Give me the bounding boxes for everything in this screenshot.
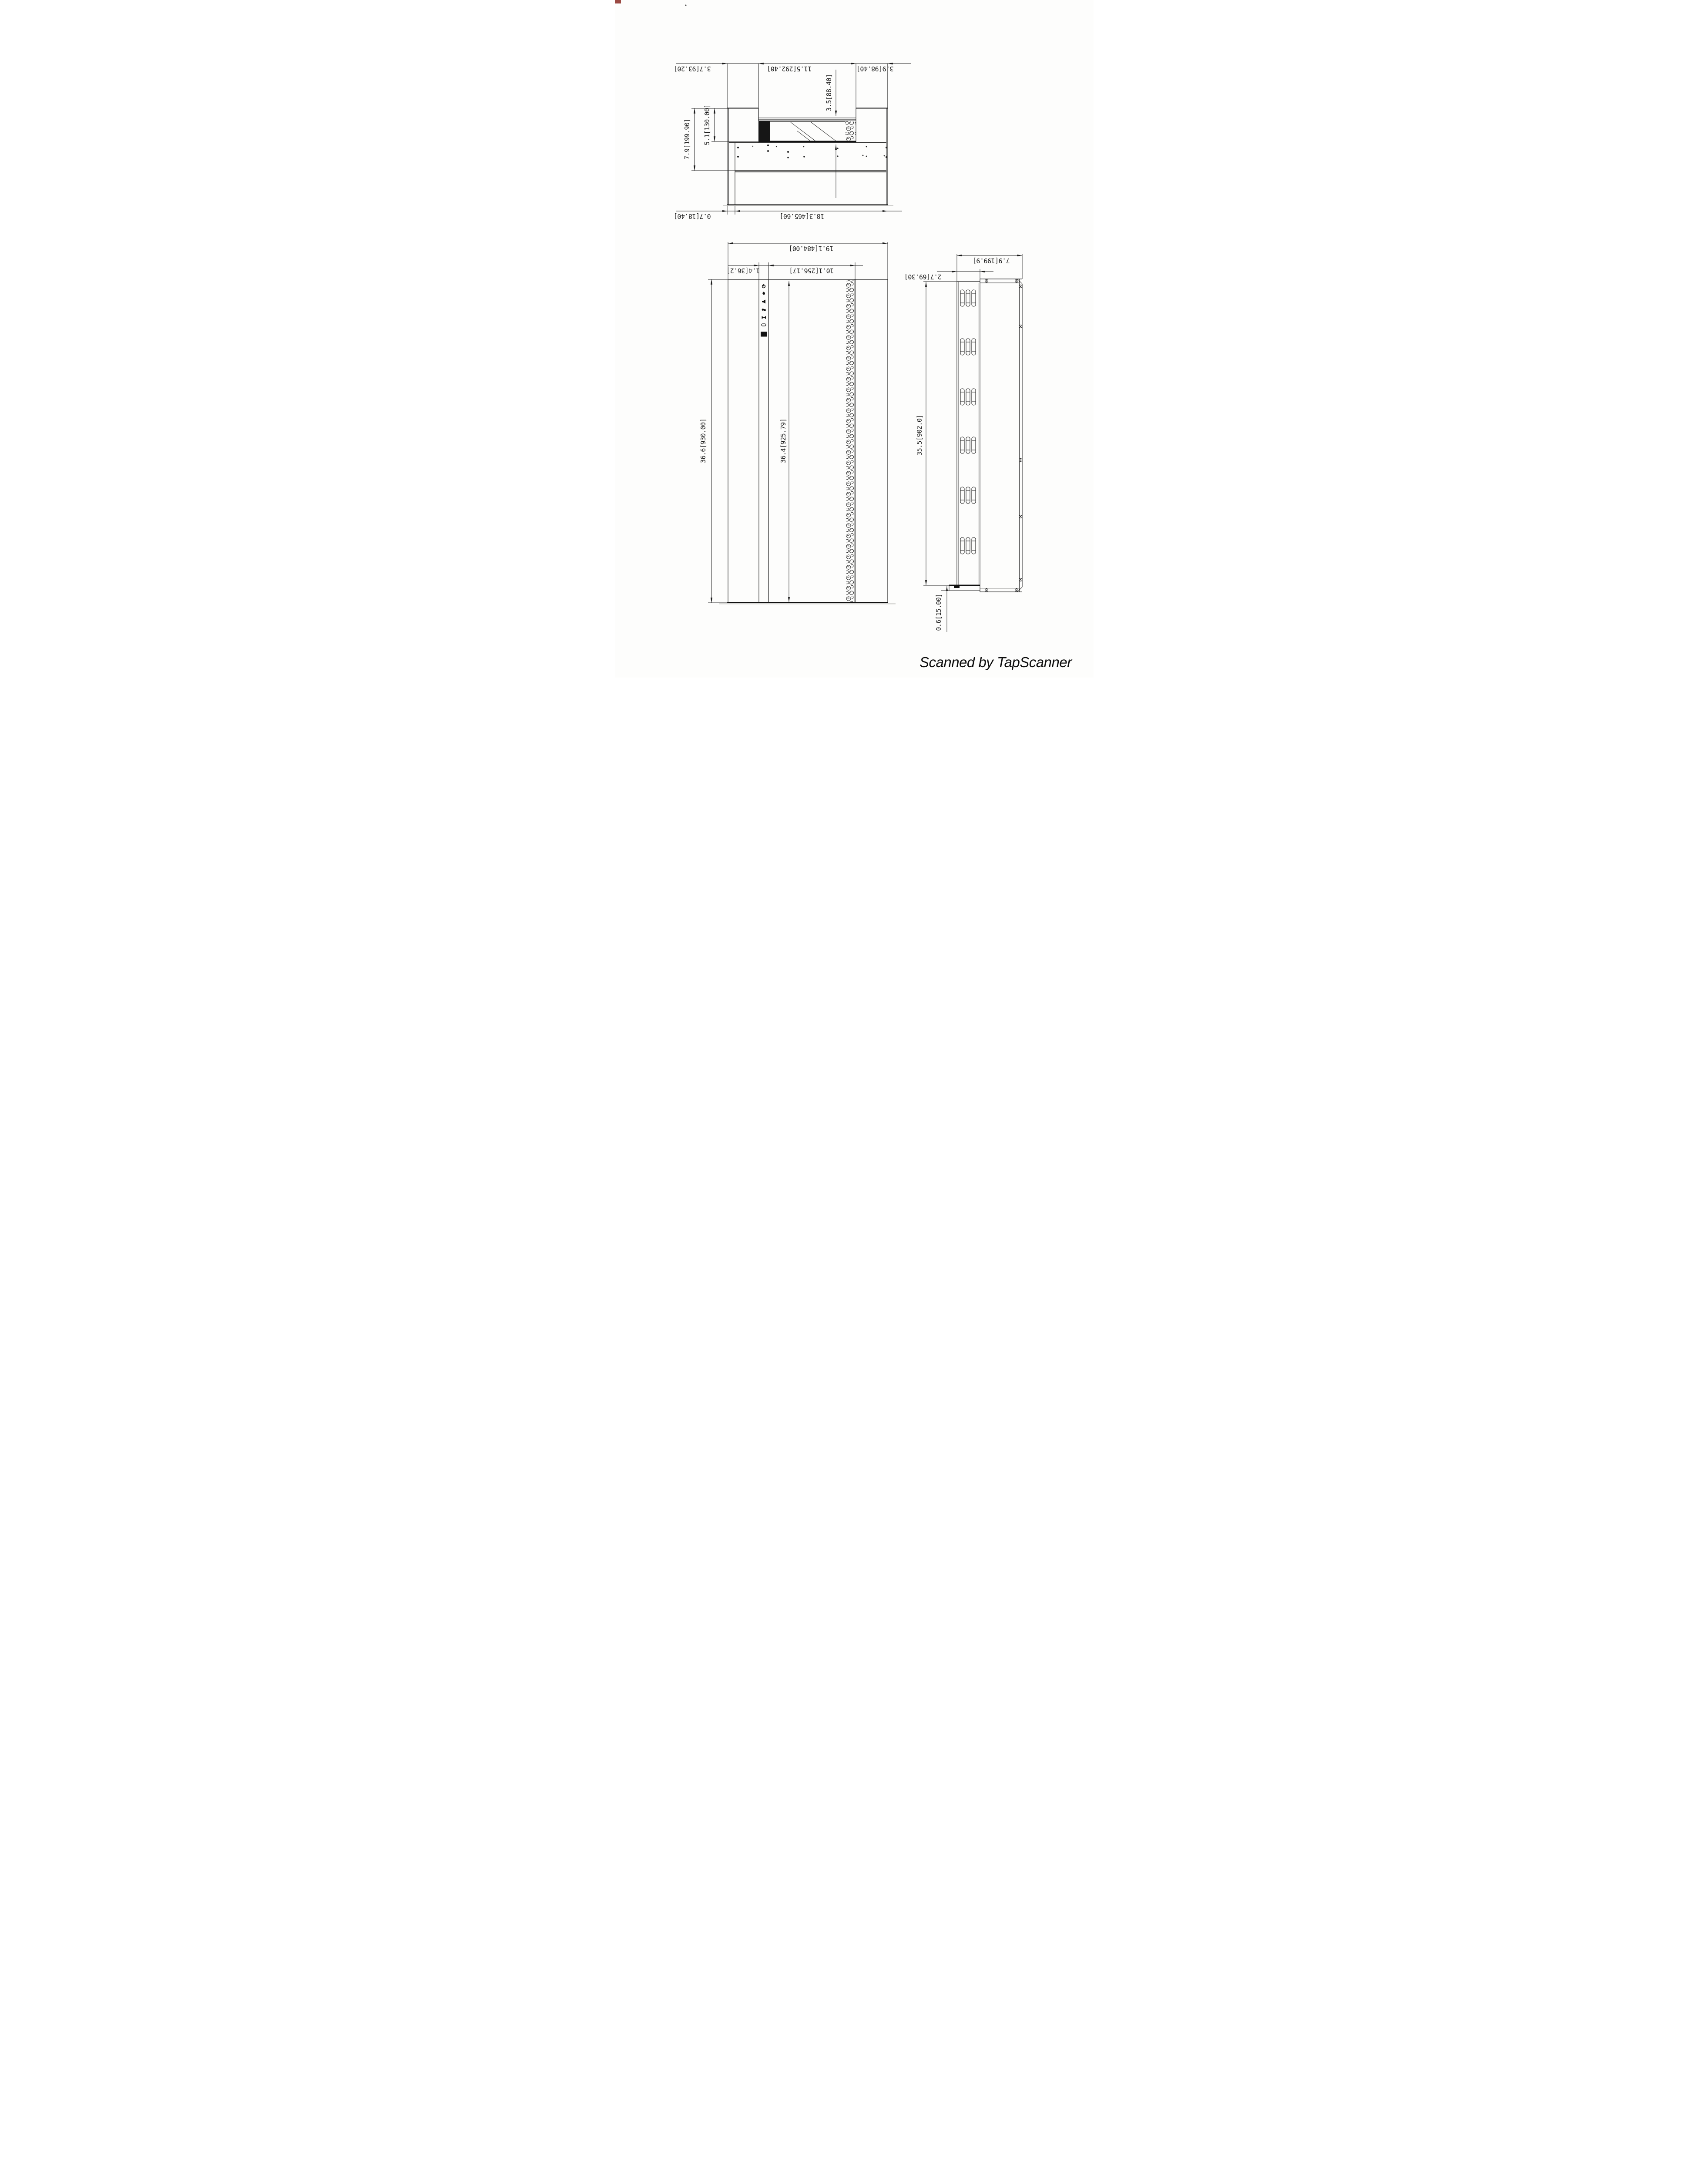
dim-top-back-inset: 0.7[18.40] [674, 212, 711, 220]
scanner-credit: Scanned by TapScanner [919, 654, 1073, 670]
panel-screws [985, 279, 1022, 591]
heater-block-section [759, 121, 770, 141]
decorative-media-section [845, 121, 856, 141]
flame-icon[interactable] [762, 292, 765, 295]
top-view: 3.7[93.20] 11.5[292.40] 3.9[98.40] 3.5[8… [674, 64, 911, 220]
bottom-trim-section [954, 585, 960, 588]
dim-top-left-frame-width: 3.7[93.20] [674, 65, 711, 73]
display-window[interactable] [761, 332, 767, 337]
dim-side-body-height: 35.5[902.0] [916, 415, 923, 456]
dim-top-right-frame-width: 3.9[98.40] [856, 65, 893, 73]
dim-top-glass-inset: 3.5[88.40] [825, 74, 833, 111]
dim-top-opening-width: 11.5[292.40] [767, 65, 811, 73]
control-panel [761, 284, 767, 337]
vent-slots [960, 290, 976, 554]
power-icon[interactable] [762, 284, 765, 288]
dim-top-recess-depth: 5.1[130.00] [703, 104, 711, 145]
dim-front-overall-height: 36.6[930.00] [699, 419, 707, 463]
media-icon[interactable] [762, 309, 765, 311]
decorative-media-strip [846, 280, 855, 602]
dim-front-opening-width: 10.1[256.17] [789, 267, 833, 275]
scan-speck [685, 5, 686, 6]
screw-holes [737, 144, 887, 158]
dim-side-body-depth: 2.7[69.30] [904, 273, 941, 281]
dim-side-bottom-flange: 0.6[15.00] [935, 594, 943, 631]
speaker-icon[interactable] [762, 300, 765, 304]
engineering-drawing: 3.7[93.20] 11.5[292.40] 3.9[98.40] 3.5[8… [615, 0, 1094, 678]
timer-icon[interactable] [762, 324, 766, 326]
dimmer-icon[interactable] [762, 316, 766, 319]
dim-top-back-panel-width: 18.3[465.60] [779, 212, 824, 220]
scan-artifacts [615, 0, 687, 6]
dim-front-control-strip-width: 1.4[36.2] [726, 267, 760, 275]
dim-side-overall-depth: 7.9[199.9] [973, 257, 1010, 265]
dim-front-overall-width: 19.1[484.00] [789, 245, 833, 252]
dim-front-opening-height: 36.4[925.79] [779, 419, 787, 463]
scanned-drawing-page: 3.7[93.20] 11.5[292.40] 3.9[98.40] 3.5[8… [615, 0, 1094, 678]
scan-edge-artifact [615, 0, 621, 3]
front-view: 19.1[484.00] 1.4[36.2] 10.1[256.17] [699, 242, 896, 604]
side-view: 7.9[199.9] 2.7[69.30] [904, 254, 1022, 632]
glass-hatch [791, 122, 836, 141]
dim-top-overall-depth: 7.9[199.90] [683, 119, 691, 160]
